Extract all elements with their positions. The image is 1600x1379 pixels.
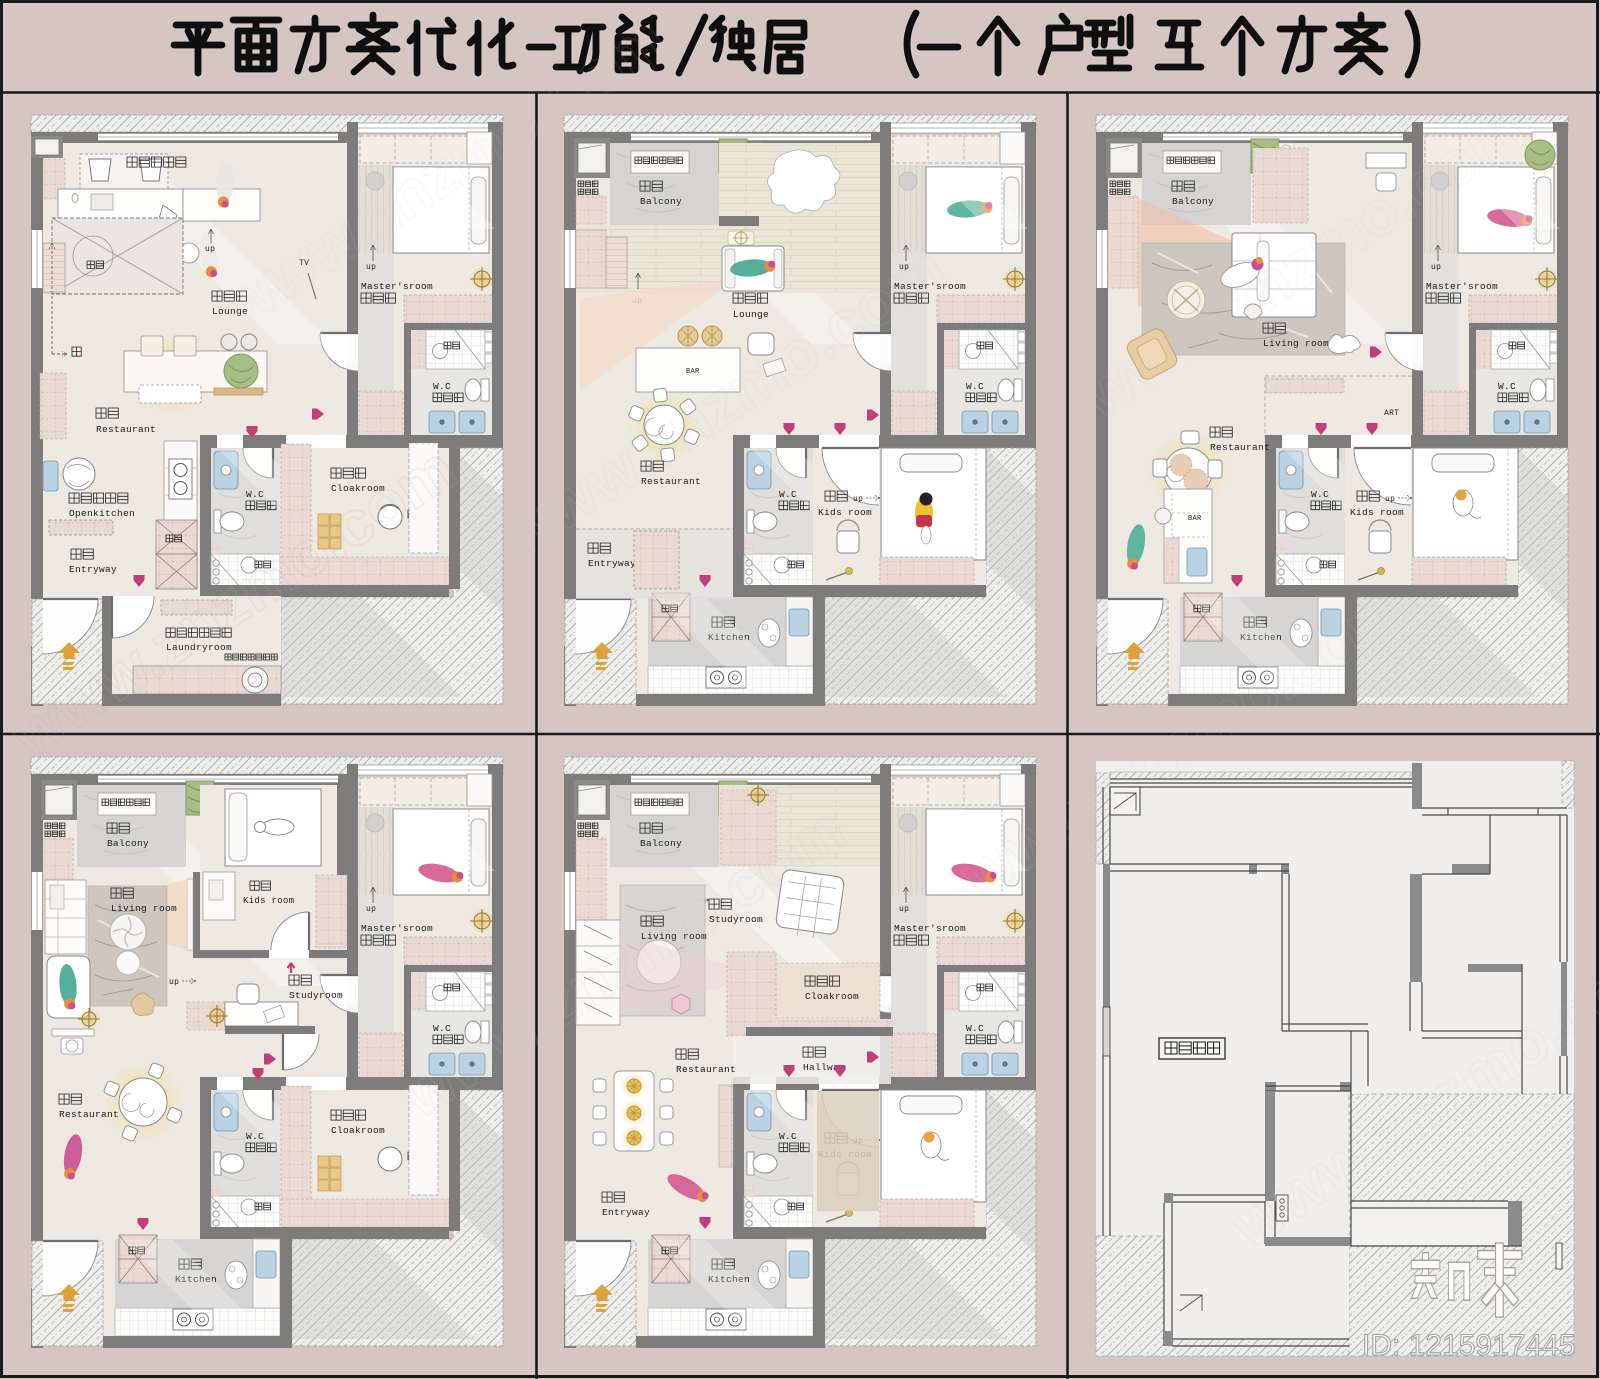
svg-text:www.znzmo.com: www.znzmo.com bbox=[388, 792, 858, 1132]
svg-text:www.znzmo.com: www.znzmo.com bbox=[488, 232, 958, 572]
svg-text:www.znzmo.com: www.znzmo.com bbox=[1068, 92, 1538, 432]
svg-text:www.znzmo.com: www.znzmo.com bbox=[208, 2, 678, 342]
svg-text:www.znzmo.com: www.znzmo.com bbox=[0, 432, 468, 772]
svg-text:www.znzmo.com: www.znzmo.com bbox=[948, 572, 1418, 912]
svg-text:www.znzmo.com: www.znzmo.com bbox=[1218, 922, 1600, 1262]
